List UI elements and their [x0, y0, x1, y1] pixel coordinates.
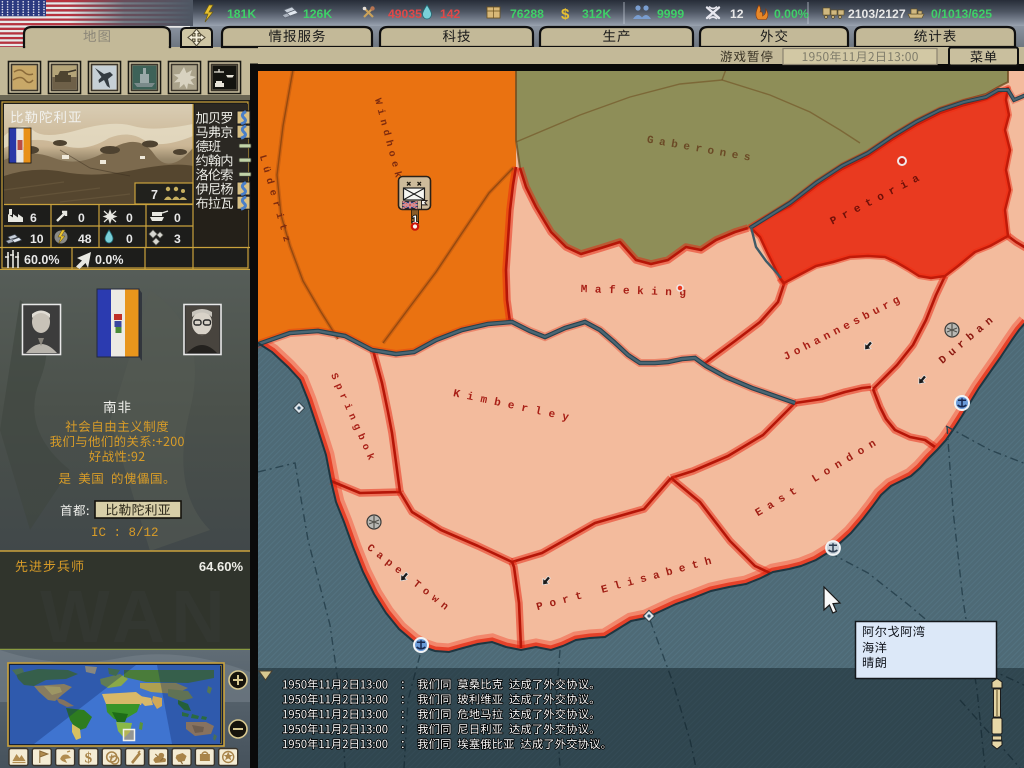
- svg-text:0: 0: [174, 211, 181, 225]
- svg-text:64.60%: 64.60%: [199, 559, 244, 574]
- svg-text:6: 6: [30, 211, 37, 225]
- svg-text:12: 12: [730, 7, 744, 21]
- svg-text:126K: 126K: [303, 7, 332, 21]
- svg-text:142: 142: [440, 7, 461, 21]
- svg-text:312K: 312K: [582, 7, 611, 21]
- svg-text:3: 3: [174, 232, 181, 246]
- svg-text:0: 0: [126, 232, 133, 246]
- svg-text:$: $: [561, 6, 570, 23]
- svg-text:48: 48: [78, 232, 92, 246]
- svg-text:IC : 8/12: IC : 8/12: [91, 526, 159, 540]
- svg-text:7: 7: [151, 188, 158, 202]
- svg-text:181K: 181K: [227, 7, 256, 21]
- svg-text:76288: 76288: [510, 7, 544, 21]
- svg-text:0.00%: 0.00%: [774, 7, 809, 21]
- svg-text:$: $: [85, 751, 93, 767]
- svg-text:0: 0: [78, 211, 85, 225]
- svg-text:WAN: WAN: [40, 575, 231, 658]
- svg-text:2103/2127: 2103/2127: [848, 7, 906, 21]
- svg-text:0.0%: 0.0%: [95, 253, 124, 267]
- svg-text:0/1013/625: 0/1013/625: [931, 7, 992, 21]
- svg-text:49035: 49035: [388, 7, 422, 21]
- svg-text:0: 0: [126, 211, 133, 225]
- svg-text:60.0%: 60.0%: [24, 253, 59, 267]
- svg-text:10: 10: [30, 232, 44, 246]
- svg-text:9999: 9999: [657, 7, 684, 21]
